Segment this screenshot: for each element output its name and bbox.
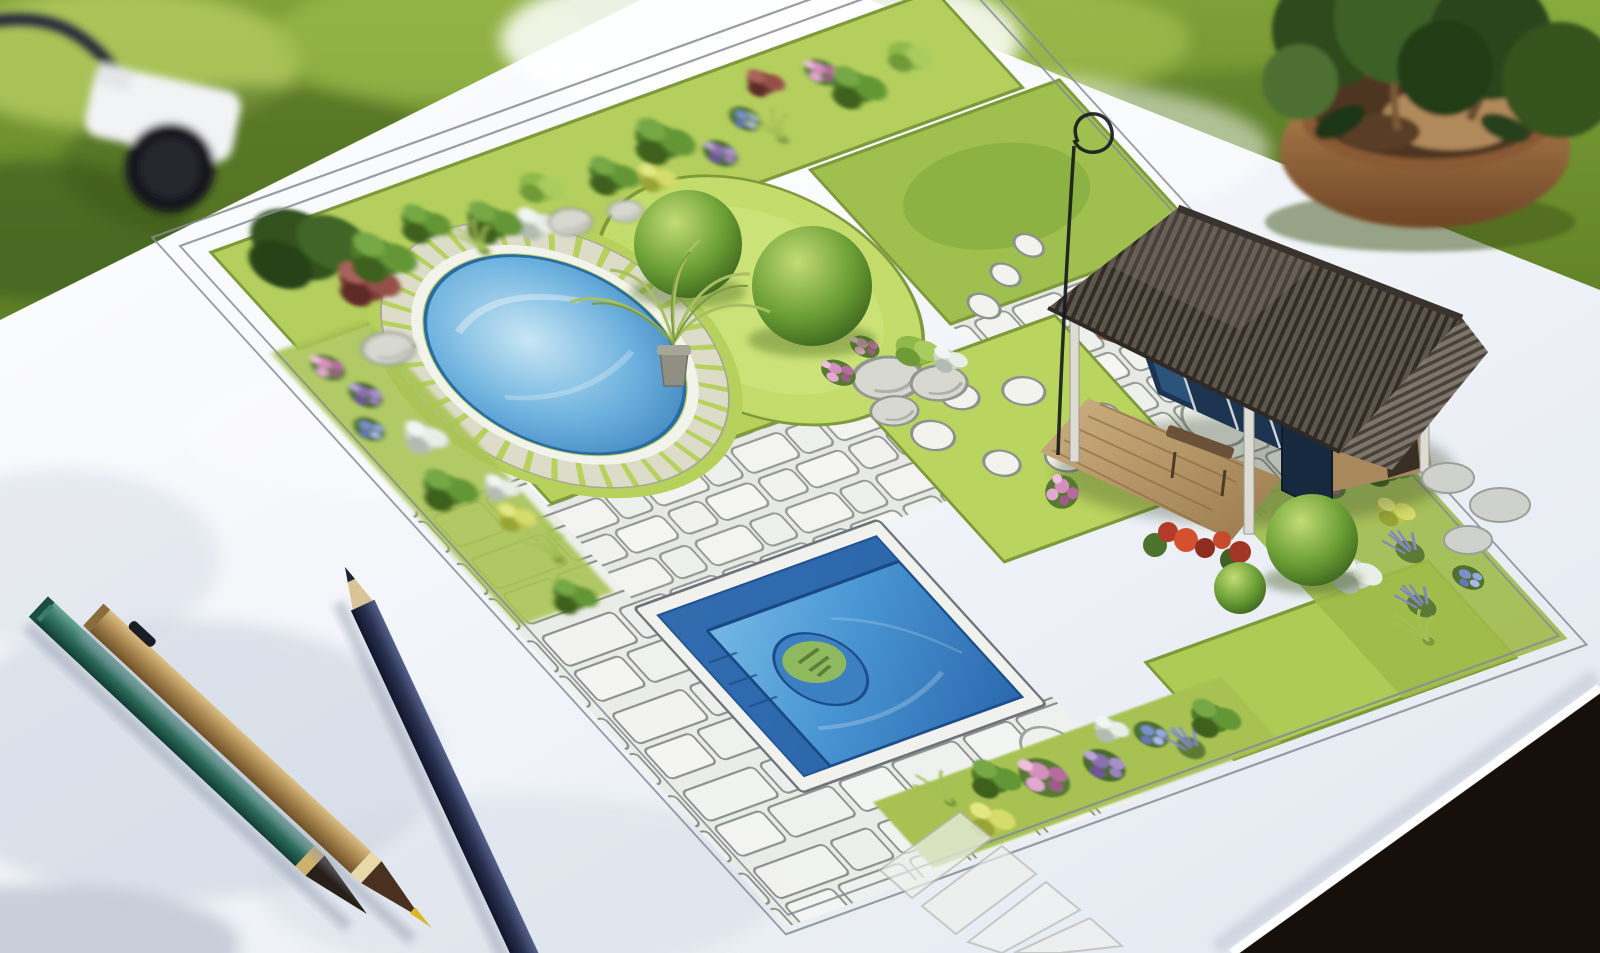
potted-plant [1262,0,1600,252]
scene-canvas [0,0,1600,953]
photo-garden-plan [0,0,1600,953]
